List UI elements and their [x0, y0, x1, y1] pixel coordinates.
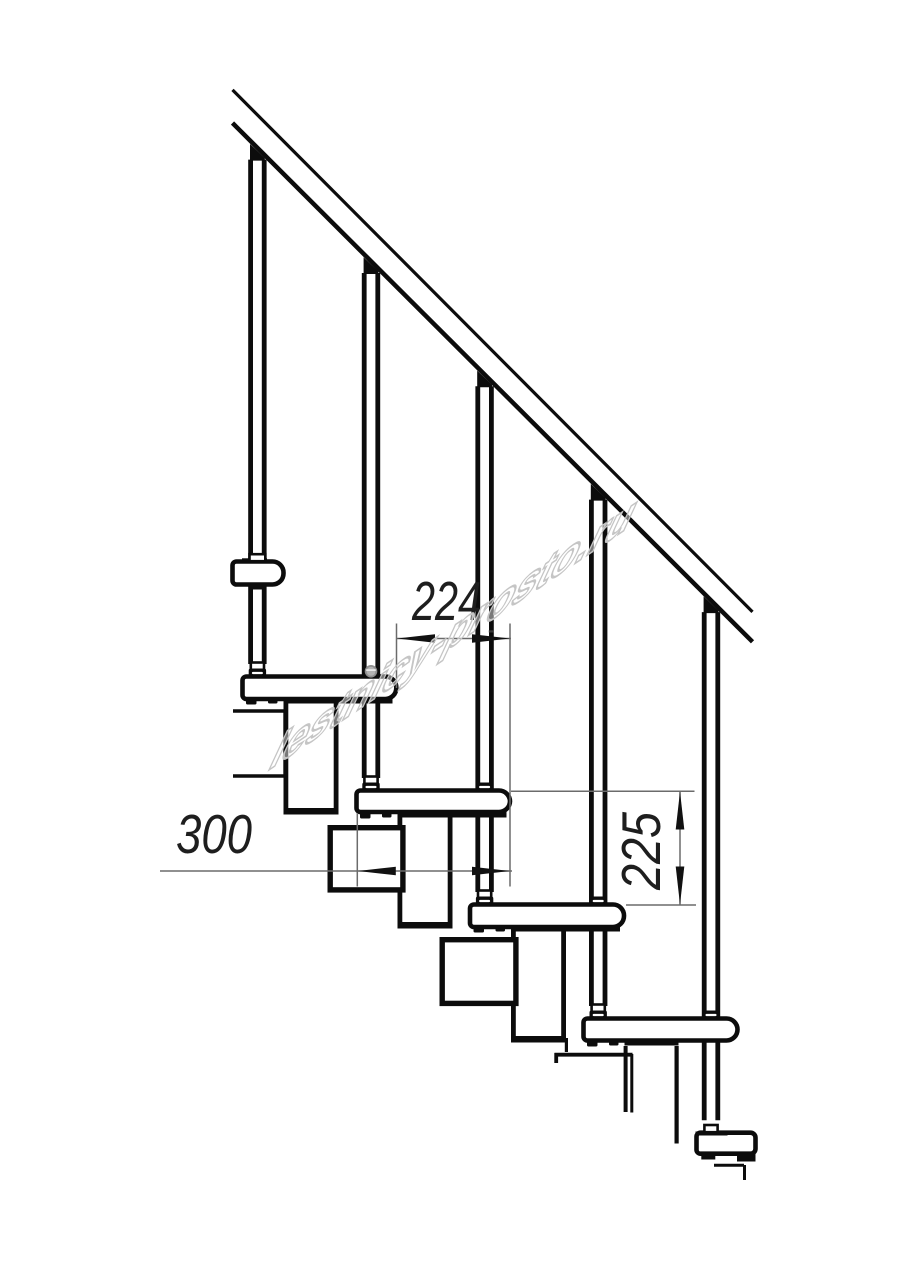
- svg-text:225: 225: [610, 812, 672, 891]
- svg-text:300: 300: [176, 803, 252, 865]
